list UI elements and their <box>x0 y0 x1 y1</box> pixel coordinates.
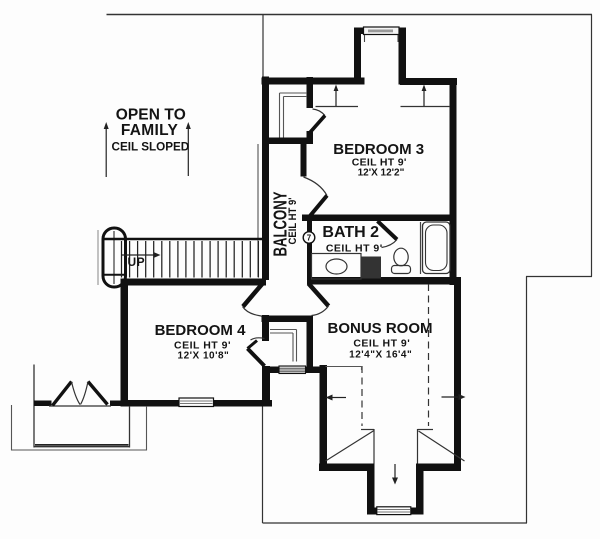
svg-text:CEIL HT 9': CEIL HT 9' <box>287 197 299 244</box>
svg-text:BONUS ROOM: BONUS ROOM <box>328 320 433 337</box>
svg-text:CEIL HT 9': CEIL HT 9' <box>326 243 383 255</box>
svg-text:12'4"X 16'4": 12'4"X 16'4" <box>349 349 412 360</box>
svg-text:UP: UP <box>127 255 145 269</box>
svg-text:12'X 12'2": 12'X 12'2" <box>358 167 405 178</box>
svg-text:BEDROOM 4: BEDROOM 4 <box>155 322 247 339</box>
svg-text:FAMILY: FAMILY <box>121 122 179 139</box>
svg-text:OPEN TO: OPEN TO <box>116 106 186 123</box>
svg-text:7: 7 <box>307 234 312 243</box>
svg-text:BATH 2: BATH 2 <box>322 224 379 241</box>
svg-text:12'X 10'8": 12'X 10'8" <box>178 351 230 362</box>
svg-text:CEIL HT 9': CEIL HT 9' <box>353 337 410 349</box>
svg-text:CEIL SLOPED: CEIL SLOPED <box>112 141 190 154</box>
